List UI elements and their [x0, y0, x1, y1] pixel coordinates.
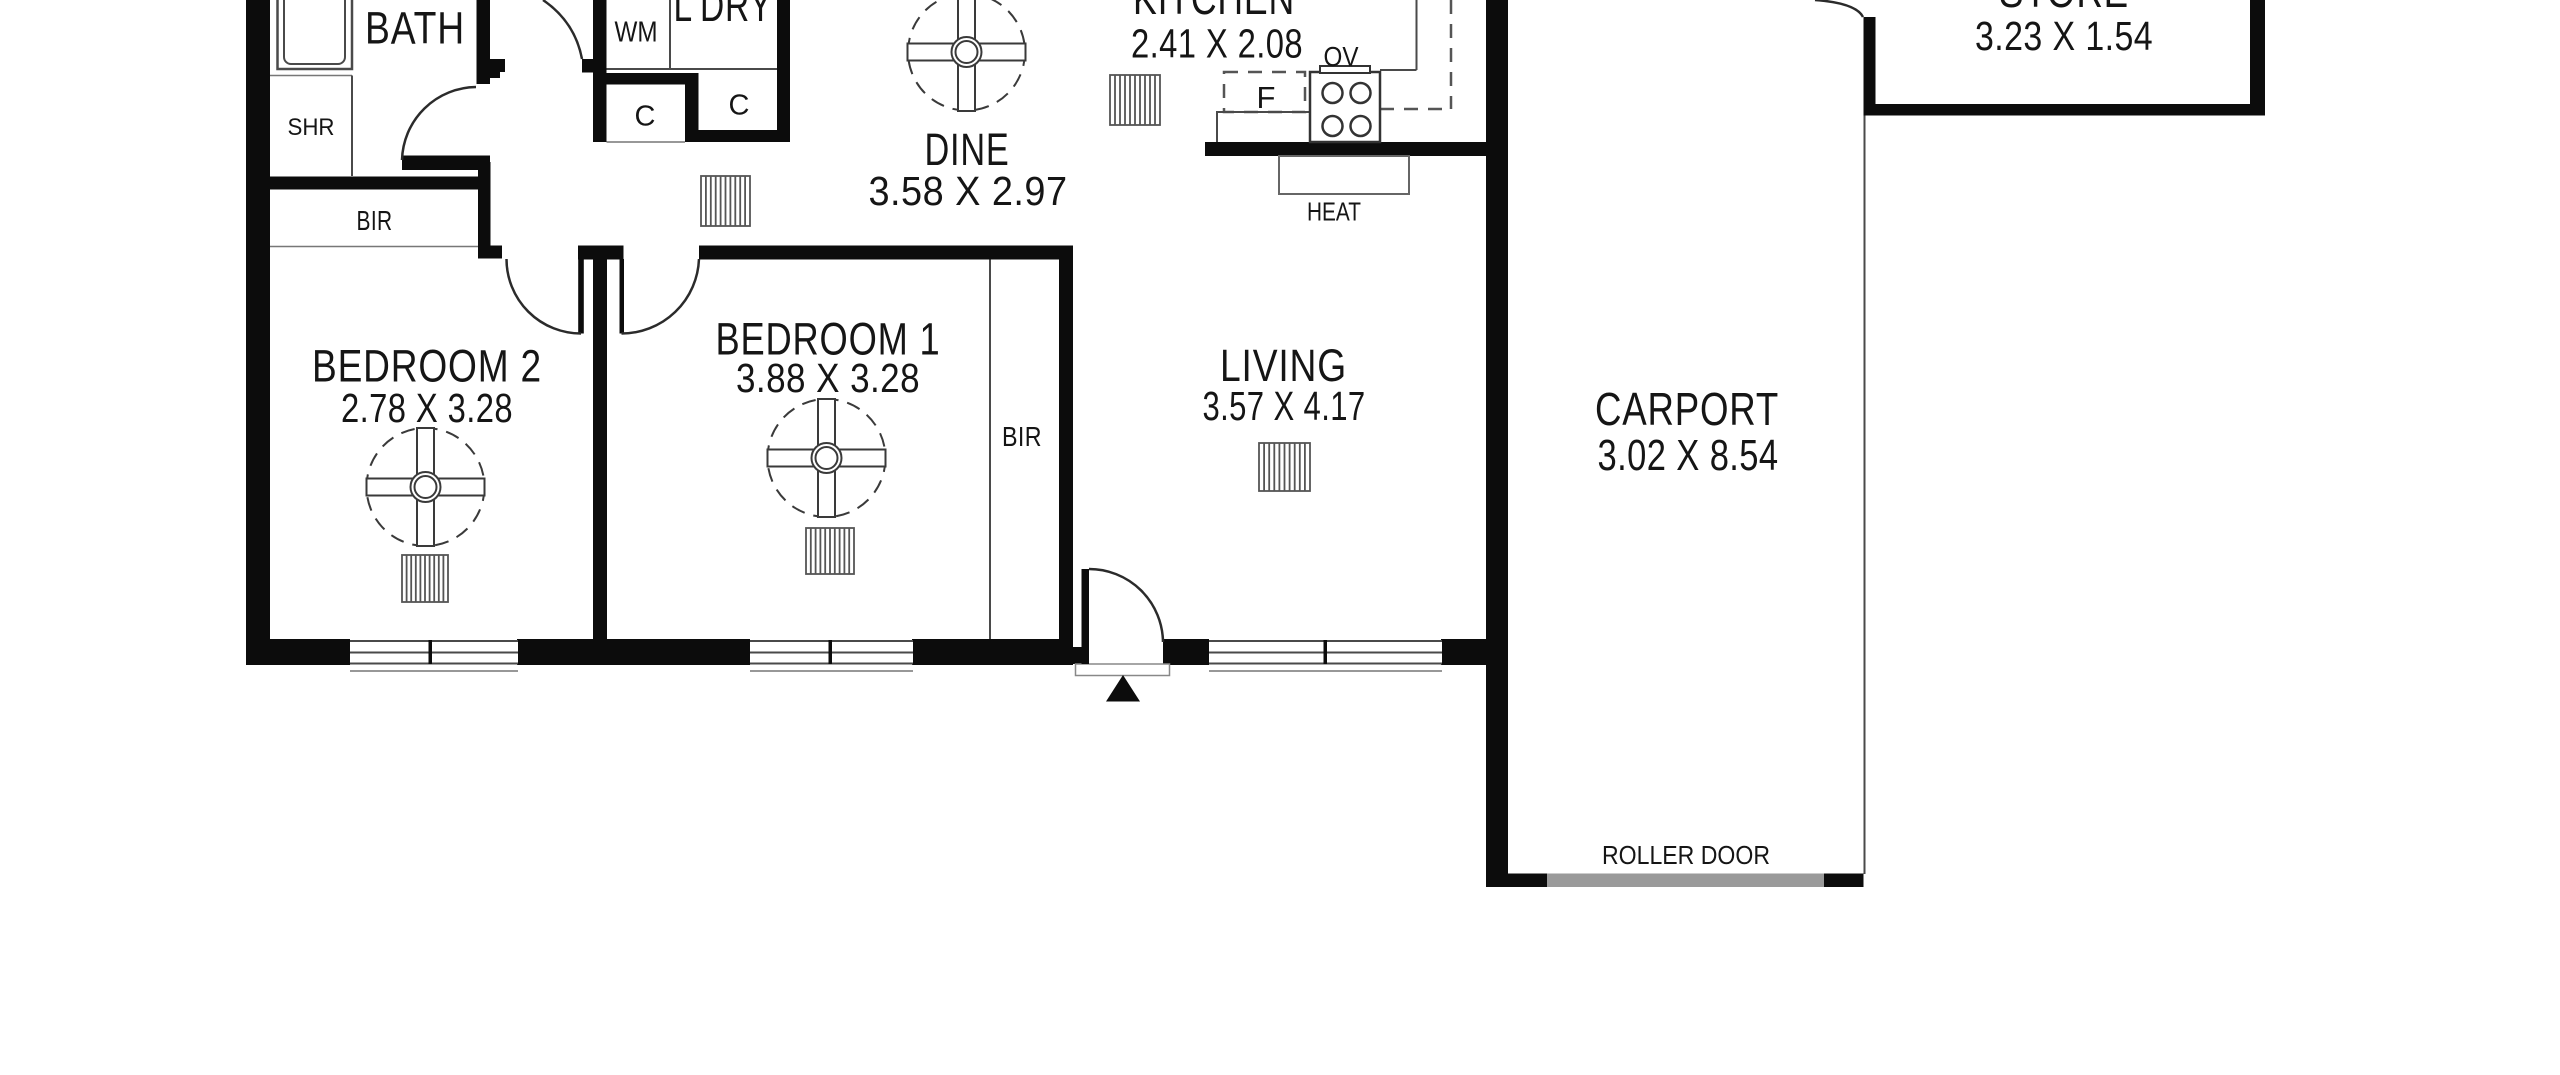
- svg-text:C: C: [729, 90, 750, 122]
- svg-text:BIR: BIR: [1002, 421, 1042, 452]
- svg-text:ROLLER DOOR: ROLLER DOOR: [1602, 840, 1770, 870]
- svg-text:BATH: BATH: [365, 3, 465, 54]
- svg-text:OV: OV: [1324, 41, 1359, 72]
- svg-text:3.57 X 4.17: 3.57 X 4.17: [1203, 383, 1366, 429]
- svg-text:C: C: [635, 101, 656, 133]
- svg-text:HEAT: HEAT: [1307, 197, 1361, 227]
- svg-text:BIR: BIR: [357, 205, 393, 236]
- svg-text:3.23 X 1.54: 3.23 X 1.54: [1975, 13, 2153, 59]
- svg-text:SHR: SHR: [288, 114, 335, 141]
- svg-text:2.41 X 2.08: 2.41 X 2.08: [1131, 21, 1303, 67]
- svg-text:F: F: [1257, 80, 1276, 115]
- svg-text:CARPORT: CARPORT: [1595, 383, 1779, 435]
- svg-text:2.78 X 3.28: 2.78 X 3.28: [341, 385, 513, 431]
- svg-text:3.58 X 2.97: 3.58 X 2.97: [869, 168, 1068, 214]
- svg-text:3.02 X 8.54: 3.02 X 8.54: [1598, 431, 1779, 480]
- svg-text:WM: WM: [615, 17, 658, 49]
- svg-text:3.88 X 3.28: 3.88 X 3.28: [736, 355, 920, 401]
- svg-text:L'DRY: L'DRY: [674, 0, 773, 31]
- svg-text:BEDROOM 2: BEDROOM 2: [312, 341, 542, 392]
